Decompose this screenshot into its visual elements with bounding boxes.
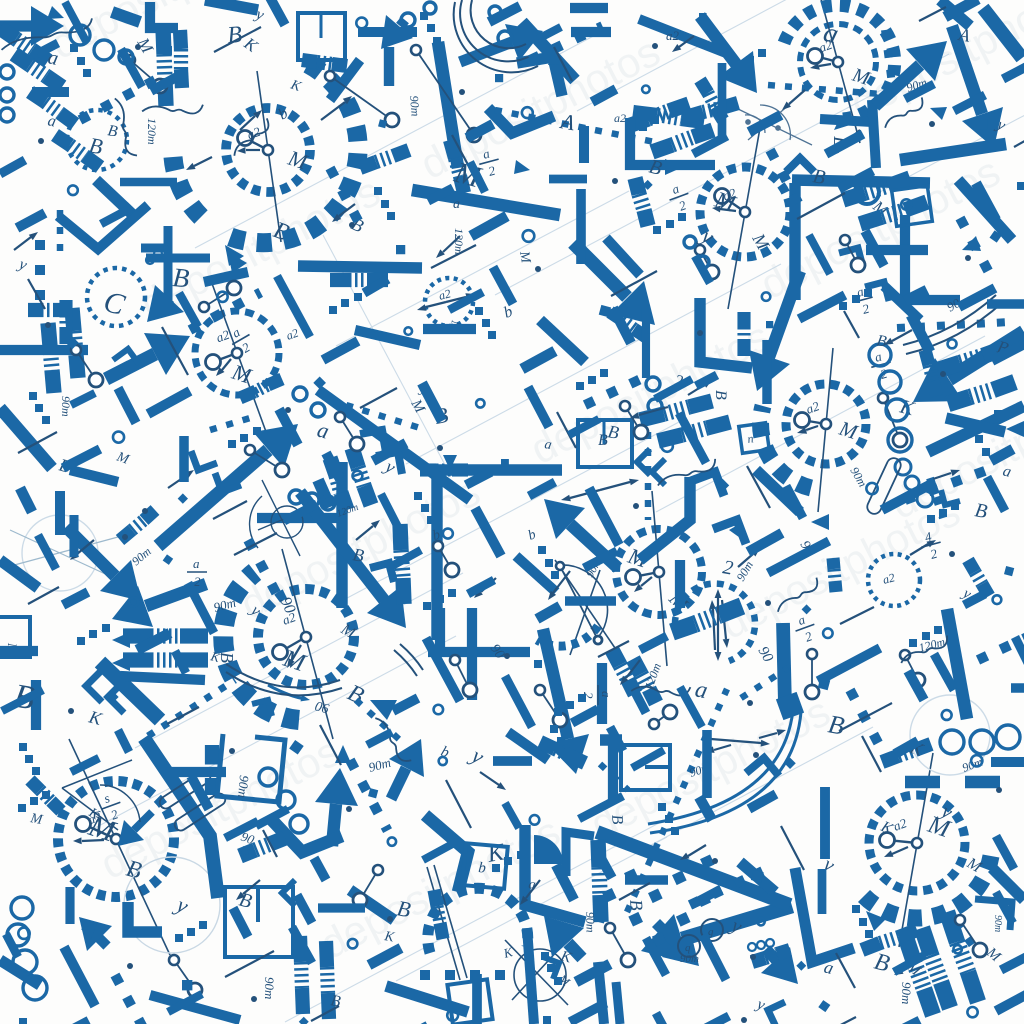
svg-text:90m: 90m (992, 915, 1003, 932)
svg-text:a: a (193, 556, 200, 571)
svg-text:120m: 120m (145, 118, 159, 145)
svg-text:g: g (708, 926, 714, 938)
svg-text:a: a (453, 197, 460, 212)
svg-text:B: B (626, 899, 647, 912)
svg-text:90m: 90m (899, 982, 914, 1004)
svg-text:2: 2 (194, 574, 201, 589)
svg-text:90m: 90m (59, 396, 73, 417)
svg-text:a: a (599, 691, 614, 698)
svg-text:90m: 90m (235, 775, 252, 799)
svg-text:a2: a2 (614, 111, 626, 125)
svg-text:B: B (171, 262, 190, 293)
svg-text:B: B (608, 814, 626, 825)
svg-text:90m: 90m (680, 953, 699, 965)
svg-text:B: B (712, 390, 729, 400)
svg-text:90m: 90m (262, 977, 277, 999)
svg-text:90m: 90m (407, 95, 423, 117)
svg-text:a2: a2 (666, 28, 680, 43)
